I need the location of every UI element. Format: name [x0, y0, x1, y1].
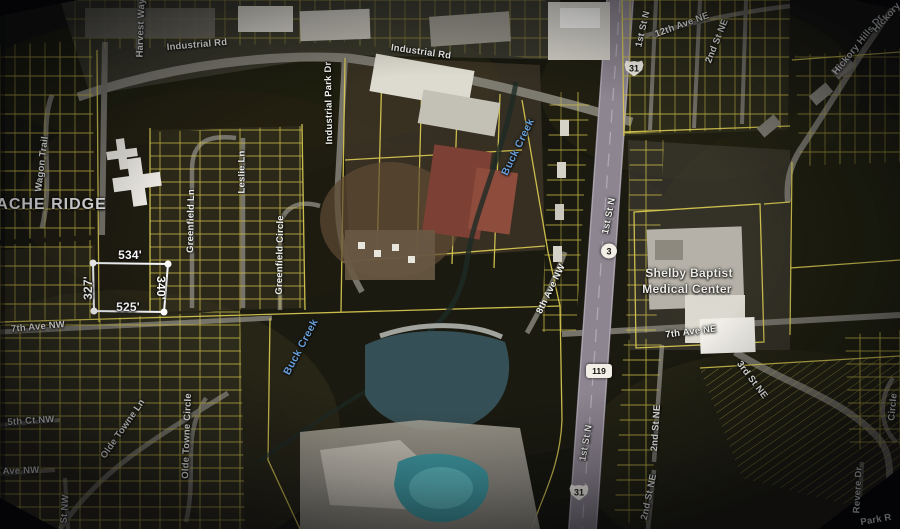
street-label-leslie-ln: Leslie Ln: [237, 151, 248, 194]
route-shield-text: 31: [574, 487, 584, 497]
route-shield-state3: 3: [601, 244, 617, 259]
place-label-hospital-line2: Medical Center: [642, 282, 732, 296]
map-art: [0, 0, 900, 529]
place-label-hospital-line1: Shelby Baptist: [645, 266, 733, 280]
route-shield-text: 119: [592, 366, 606, 376]
measurement-bottom: 525': [116, 300, 140, 314]
street-label-industrial-park-dr: Industrial Park Dr: [323, 62, 335, 145]
route-shield-state119: 119: [586, 364, 612, 378]
map-canvas[interactable]: Industrial Rd Industrial Rd Harvest Way …: [0, 0, 900, 529]
measurement-right: 340': [154, 276, 168, 300]
street-label-greenfield-circle: Greenfield Circle: [274, 215, 286, 295]
measurement-left: 327': [81, 276, 95, 300]
street-label-ave-nw: Ave NW: [2, 465, 39, 477]
street-label-greenfield-ln: Greenfield Ln: [185, 189, 197, 253]
place-label-apache-ridge: APACHE RIDGE: [0, 196, 107, 214]
street-label-st-nw: St NW: [59, 494, 72, 524]
measurement-top: 534': [118, 248, 142, 262]
route-shield-text: 3: [606, 246, 611, 256]
street-label-harvest-way: Harvest Way: [134, 0, 147, 58]
route-shield-text: 31: [629, 63, 639, 73]
